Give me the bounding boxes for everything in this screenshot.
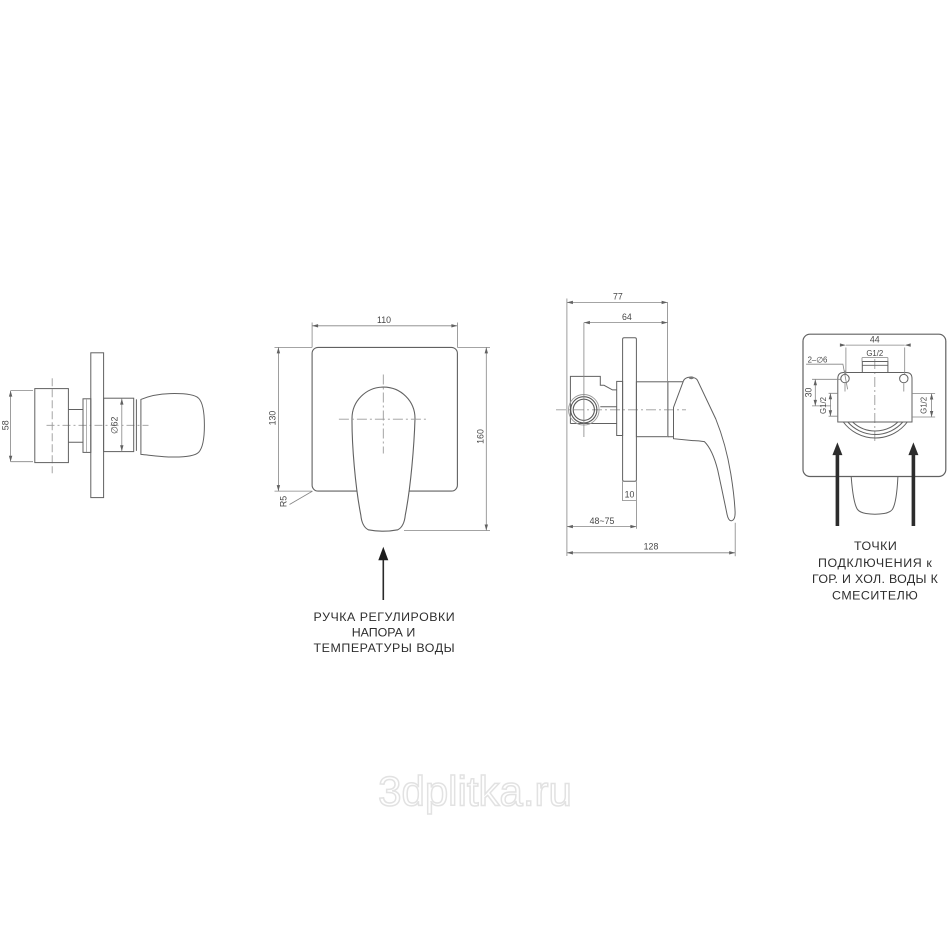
- svg-text:ГОР. И ХОЛ. ВОДЫ К: ГОР. И ХОЛ. ВОДЫ К: [812, 572, 939, 586]
- svg-text:G1/2: G1/2: [866, 349, 883, 358]
- svg-text:44: 44: [870, 335, 880, 345]
- svg-text:ТЕМПЕРАТУРЫ ВОДЫ: ТЕМПЕРАТУРЫ ВОДЫ: [314, 641, 455, 655]
- svg-text:ПОДКЛЮЧЕНИЯ к: ПОДКЛЮЧЕНИЯ к: [818, 556, 932, 570]
- svg-text:77: 77: [613, 291, 623, 301]
- svg-text:НАПОРА И: НАПОРА И: [352, 626, 416, 640]
- svg-text:G1/2: G1/2: [819, 397, 828, 414]
- svg-text:2–∅6: 2–∅6: [808, 356, 828, 365]
- svg-text:160: 160: [476, 429, 486, 444]
- svg-text:РУЧКА РЕГУЛИРОВКИ: РУЧКА РЕГУЛИРОВКИ: [314, 610, 455, 624]
- svg-text:48~75: 48~75: [590, 516, 615, 526]
- svg-text:3dplitka.ru: 3dplitka.ru: [378, 768, 572, 815]
- svg-text:58: 58: [0, 420, 10, 430]
- svg-text:30: 30: [804, 388, 814, 398]
- svg-text:128: 128: [644, 542, 659, 552]
- svg-text:10: 10: [625, 490, 635, 500]
- svg-text:∅62: ∅62: [110, 416, 120, 434]
- svg-text:110: 110: [377, 315, 391, 325]
- svg-text:G1/2: G1/2: [919, 397, 928, 414]
- svg-text:R5: R5: [279, 496, 289, 507]
- svg-text:64: 64: [622, 312, 632, 322]
- svg-text:ТОЧКИ: ТОЧКИ: [854, 539, 897, 553]
- svg-text:СМЕСИТЕЛЮ: СМЕСИТЕЛЮ: [832, 589, 918, 603]
- svg-text:130: 130: [268, 411, 278, 426]
